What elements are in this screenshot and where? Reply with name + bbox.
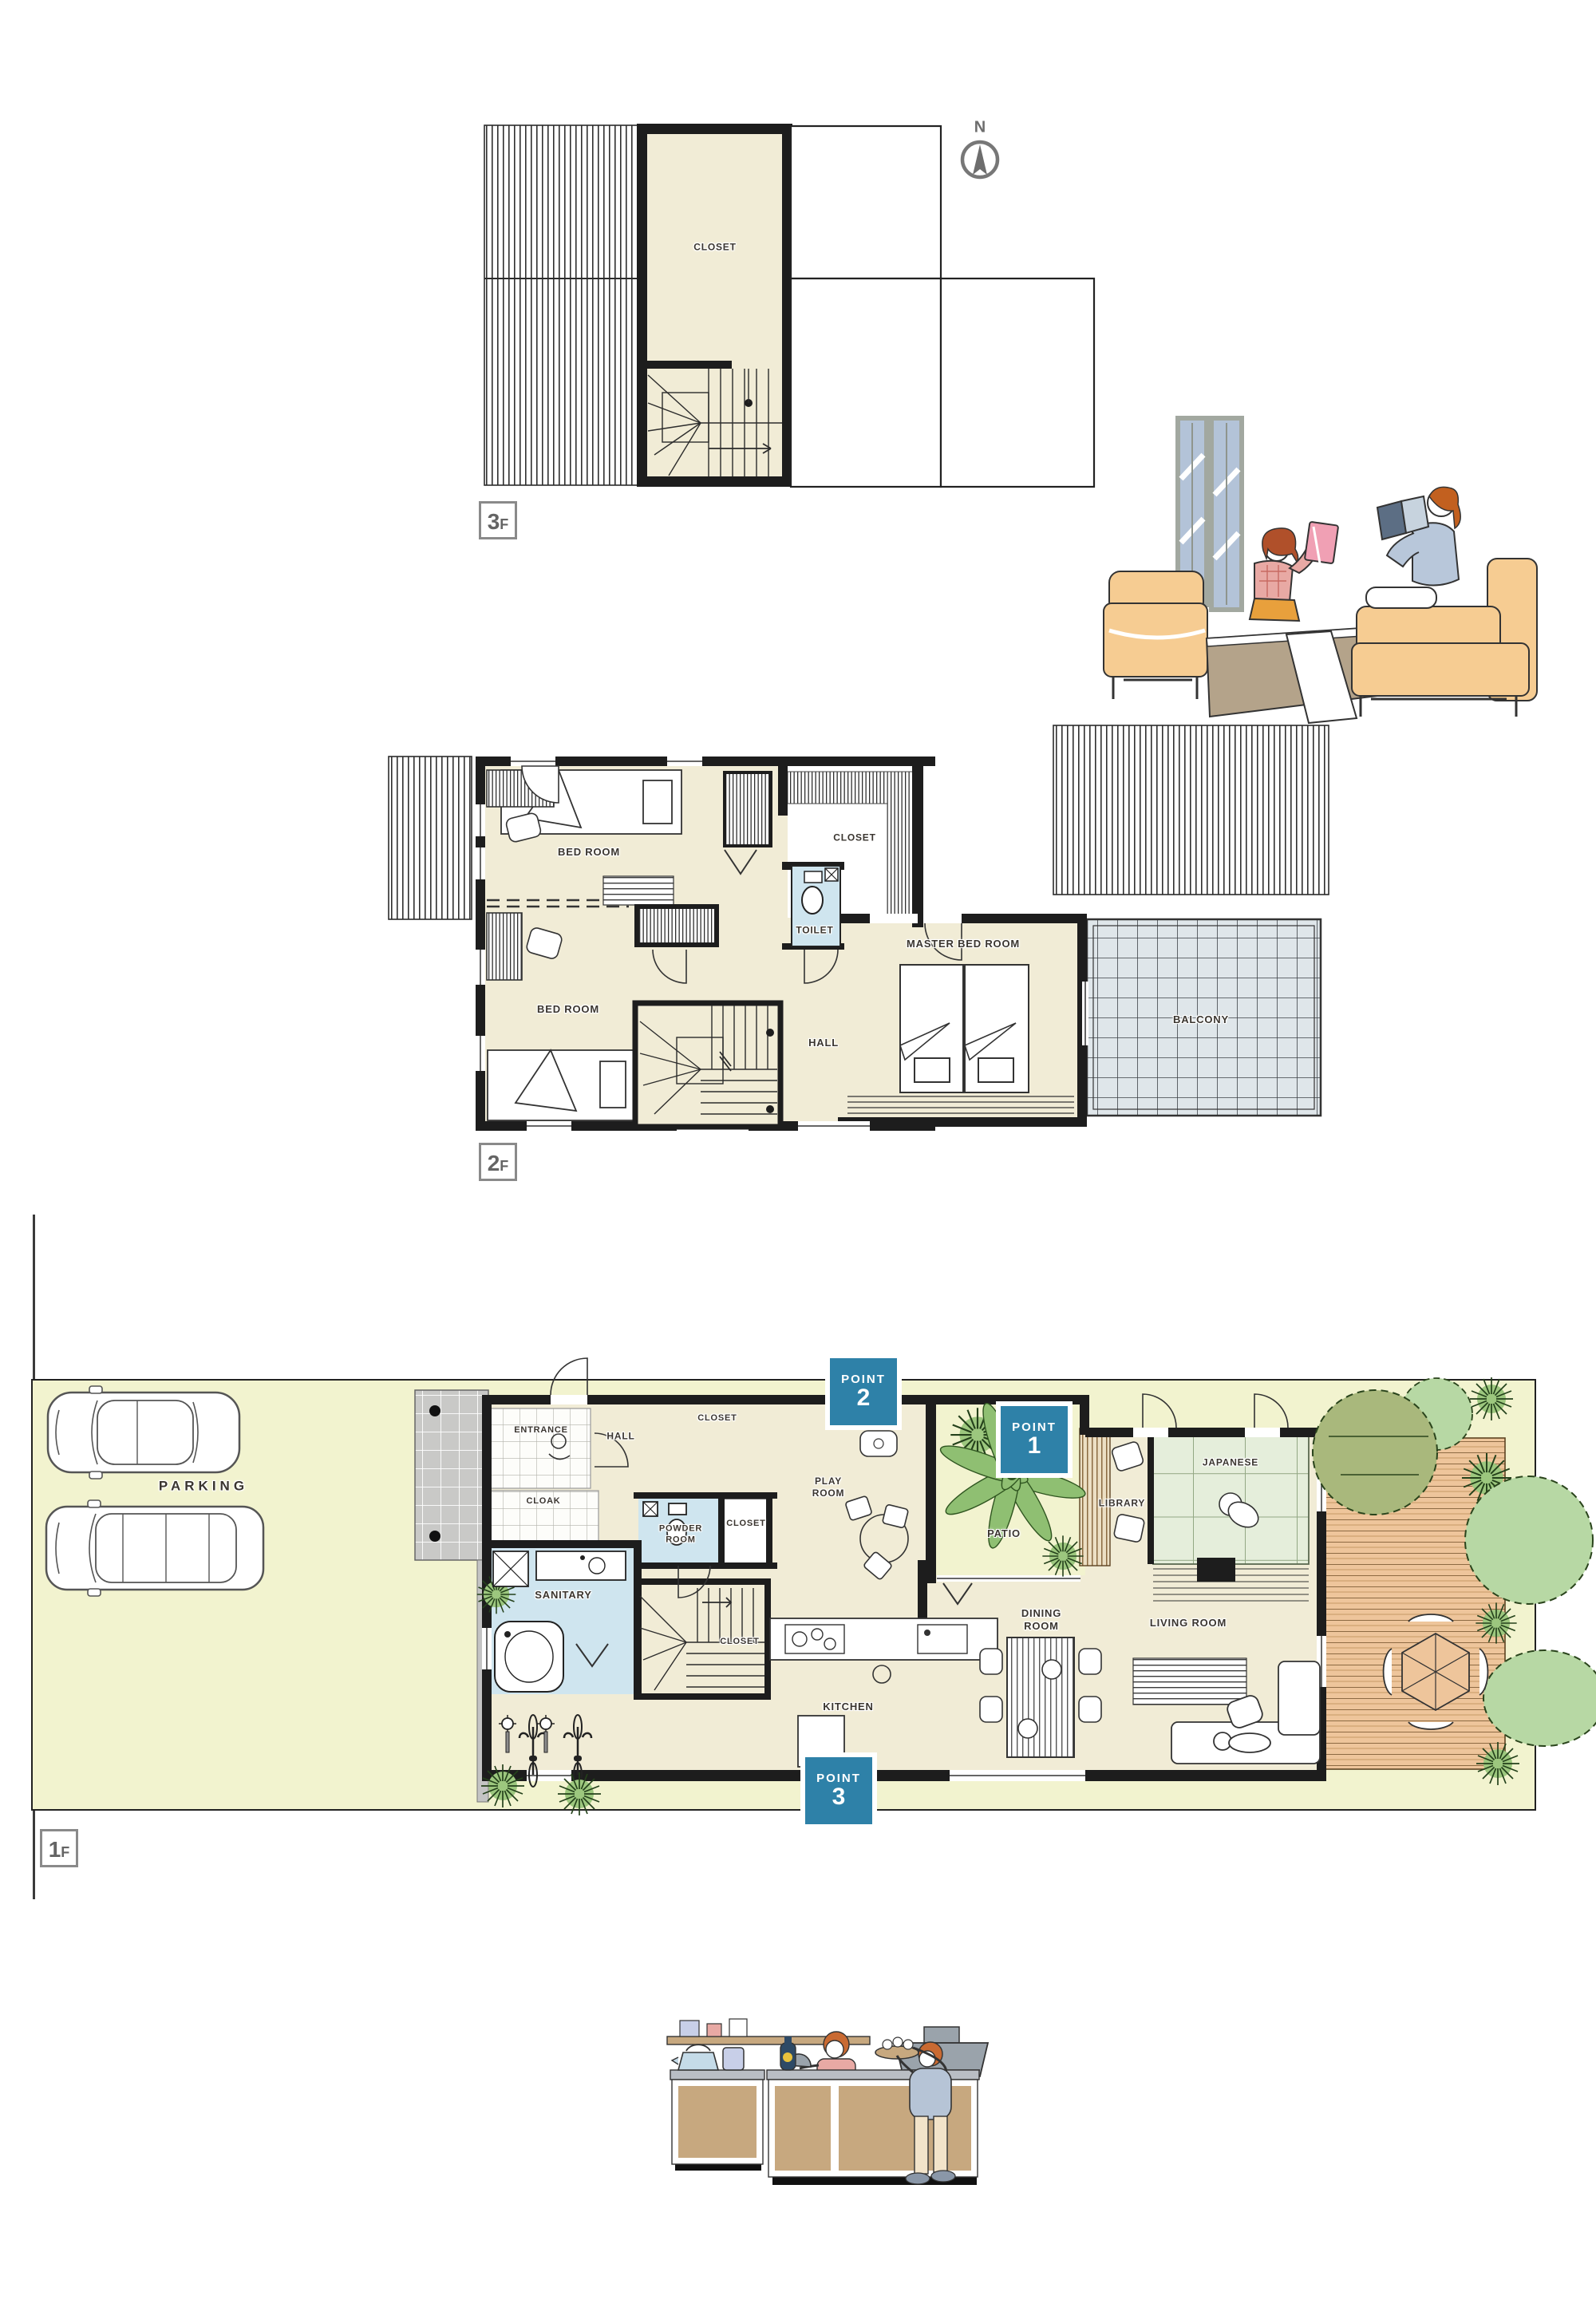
plan-drawing — [0, 0, 1596, 2319]
floor-tag-1F: 1F — [40, 1829, 78, 1867]
room-label: POWDER ROOM — [659, 1523, 702, 1546]
room-label: DINING ROOM — [1021, 1607, 1061, 1634]
point-badge-number: 1 — [1028, 1433, 1041, 1459]
picture-book-icon — [1305, 522, 1338, 564]
room-label: CLOSET — [833, 832, 875, 844]
room-label: CLOSET — [720, 1637, 759, 1648]
point-badge-1: POINT1 — [996, 1401, 1073, 1478]
room-label: HALL — [606, 1431, 634, 1443]
3f-room-a — [791, 126, 941, 279]
room-label: PATIO — [987, 1527, 1021, 1540]
floor-tag-number: 3 — [488, 511, 500, 533]
room-label: TOILET — [796, 925, 833, 937]
room-label: HALL — [808, 1037, 839, 1049]
entrance-approach-tiles — [415, 1390, 488, 1560]
3f-closet-room — [647, 134, 782, 476]
room-label: JAPANESE — [1203, 1457, 1258, 1469]
floor-tag-3F: 3F — [479, 501, 517, 539]
canister-icon — [723, 2048, 744, 2070]
room-label: BALCONY — [1173, 1013, 1229, 1026]
point-badge-title: POINT — [816, 1772, 861, 1784]
armchair-illustration — [1104, 571, 1207, 699]
floor-tag-2F: 2F — [479, 1143, 517, 1181]
2f-roof-hatch — [1053, 725, 1329, 895]
2f-deck-hatch — [389, 757, 472, 919]
room-label: SANITARY — [535, 1589, 591, 1602]
room-label: LIVING ROOM — [1150, 1617, 1227, 1630]
room-label: CLOSET — [693, 242, 736, 254]
father-figure — [1366, 487, 1460, 608]
2f-center-closet — [637, 907, 717, 945]
floor-tag-number: 1 — [49, 1839, 61, 1861]
2f-closet-hatch-small — [725, 772, 771, 846]
north-compass-icon — [962, 142, 997, 177]
point-badge-3: POINT3 — [800, 1752, 877, 1829]
floor-2f-plan — [389, 725, 1329, 1131]
point-badge-title: POINT — [841, 1373, 886, 1385]
2f-bed-2 — [488, 1050, 634, 1120]
room-label: KITCHEN — [823, 1701, 873, 1713]
3f-roof-hatch — [484, 125, 638, 485]
room-label: CLOSET — [726, 1519, 765, 1530]
car-sedan — [48, 1386, 239, 1479]
point-badge-title: POINT — [1012, 1421, 1057, 1433]
1f-entrance-tiles — [488, 1408, 591, 1488]
floor-tag-number: 2 — [488, 1152, 500, 1175]
point-badge-number: 2 — [857, 1385, 871, 1411]
room-label: PARKING — [159, 1477, 248, 1494]
room-label: CLOAK — [526, 1496, 560, 1507]
point-badge-number: 3 — [832, 1784, 846, 1810]
point-badge-2: POINT2 — [825, 1353, 902, 1430]
floor-tag-suffix: F — [500, 1159, 508, 1173]
2f-stairs — [635, 1003, 780, 1127]
living-room-illustration — [1104, 418, 1537, 723]
floor-3f-plan — [484, 124, 1094, 487]
car-wagon — [46, 1500, 263, 1596]
room-label: BED ROOM — [537, 1003, 599, 1016]
3f-room-c — [941, 279, 1094, 487]
2f-rug — [603, 876, 674, 905]
1f-closet-a — [723, 1499, 771, 1566]
room-label: CLOSET — [697, 1413, 737, 1424]
compass-north-label: N — [974, 119, 986, 137]
floor-plan-sheet: N CLOSETBED ROOMCLOSETTOILETBED ROOMMAST… — [0, 0, 1596, 2319]
room-label: PLAY ROOM — [812, 1476, 845, 1499]
3f-room-b — [791, 279, 941, 487]
kettle-icon — [672, 2044, 718, 2070]
room-label: LIBRARY — [1099, 1498, 1146, 1510]
kitchen-illustration — [667, 2019, 988, 2185]
room-label: BED ROOM — [558, 846, 620, 859]
floor-tag-suffix: F — [61, 1845, 69, 1859]
room-label: MASTER BED ROOM — [907, 938, 1020, 950]
room-label: ENTRANCE — [514, 1425, 568, 1436]
daughter-figure — [1250, 522, 1338, 621]
floor-tag-suffix: F — [500, 517, 508, 531]
